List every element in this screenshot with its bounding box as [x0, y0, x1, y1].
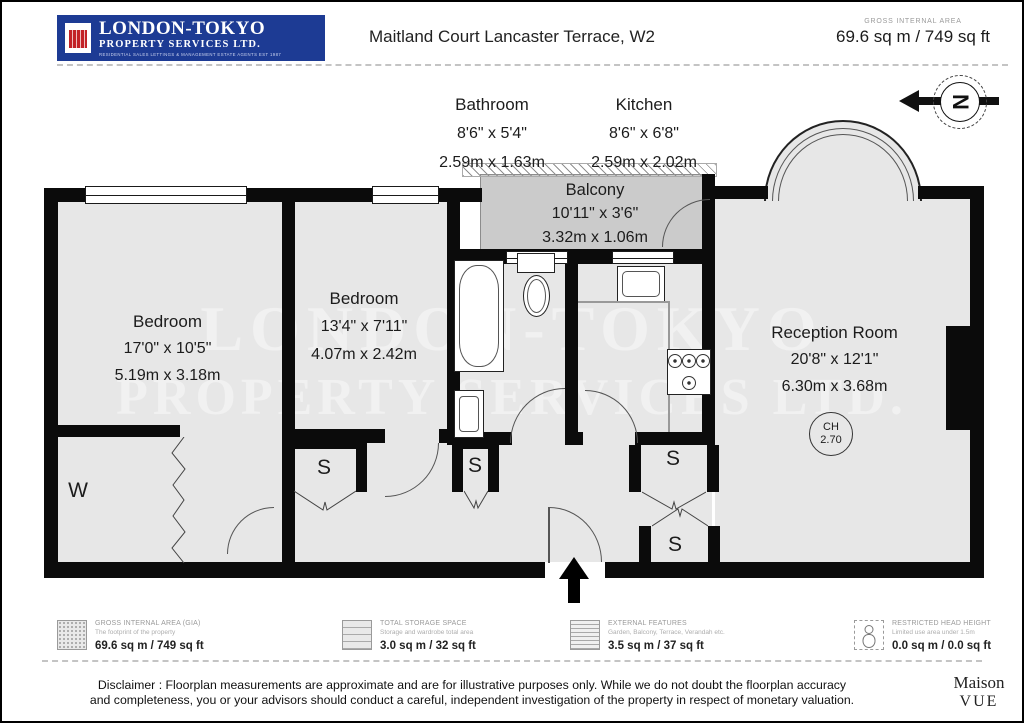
kitchen-label: Kitchen 8'6" x 6'8" 2.59m x 2.02m — [570, 90, 718, 177]
legend-title: TOTAL STORAGE SPACE — [380, 620, 476, 627]
legend-value: 69.6 sq m / 749 sq ft — [95, 640, 204, 652]
window-bedroom2 — [372, 186, 439, 204]
wall-closet4 — [708, 526, 720, 562]
compass-arrowhead-icon — [899, 90, 919, 112]
entrance-door-leaf — [548, 507, 550, 563]
brand-line2: VUE — [940, 693, 1018, 711]
wall — [970, 198, 984, 578]
room-name: Bedroom — [80, 308, 255, 335]
storage-marker: S — [458, 454, 492, 478]
legend-value: 3.5 sq m / 37 sq ft — [608, 640, 725, 652]
header-divider — [57, 64, 1008, 66]
wardrobe-accordion-door — [168, 437, 190, 563]
bathroom-label: Bathroom 8'6" x 5'4" 2.59m x 1.63m — [417, 90, 567, 177]
wall — [44, 188, 58, 578]
balcony-label: Balcony 10'11" x 3'6" 3.32m x 1.06m — [482, 178, 708, 250]
counter-edge — [578, 301, 670, 303]
restricted-height-icon — [854, 620, 884, 650]
closet2-bifold-door — [464, 490, 488, 510]
room-metric: 5.19m x 3.18m — [80, 362, 255, 389]
storage-marker: S — [307, 456, 341, 480]
storage-marker: S — [656, 447, 690, 471]
wall-closet3 — [629, 445, 641, 492]
toilet-cistern-icon — [517, 253, 555, 273]
room-imperial: 10'11" x 3'6" — [482, 202, 708, 226]
room-name: Bedroom — [280, 285, 448, 313]
gia-swatch-icon — [57, 620, 87, 650]
bay-window-arch — [764, 120, 922, 201]
legend-divider — [42, 660, 982, 662]
legend-value: 3.0 sq m / 32 sq ft — [380, 640, 476, 652]
storage-marker: S — [658, 533, 692, 557]
disclaimer-line1: Disclaimer : Floorplan measurements are … — [52, 678, 892, 693]
legend-subtitle: Garden, Balcony, Terrace, Verandah etc. — [608, 629, 725, 636]
room-name: Bathroom — [417, 90, 567, 119]
reception-label: Reception Room 20'8" x 12'1" 6.30m x 3.6… — [737, 319, 932, 400]
legend-title: EXTERNAL FEATURES — [608, 620, 725, 627]
disclaimer: Disclaimer : Floorplan measurements are … — [52, 678, 892, 707]
ch-label: CH — [810, 421, 852, 434]
entrance-arrow-icon — [559, 557, 589, 579]
room-metric: 2.59m x 2.02m — [570, 148, 718, 177]
window-kitchen — [612, 251, 674, 264]
wardrobe-marker: W — [62, 479, 94, 503]
legend-subtitle: Storage and wardrobe total area — [380, 629, 476, 636]
wall — [565, 264, 578, 445]
legend-title: RESTRICTED HEAD HEIGHT — [892, 620, 991, 627]
legend-gia: GROSS INTERNAL AREA (GIA) The footprint … — [57, 620, 204, 652]
gross-internal-area: GROSS INTERNAL AREA 69.6 sq m / 749 sq f… — [818, 18, 1008, 47]
room-imperial: 13'4" x 7'11" — [280, 313, 448, 341]
window-bedroom1 — [85, 186, 247, 204]
compass-north-letter: N — [947, 94, 973, 110]
kitchen-sink-icon — [617, 266, 665, 302]
person-icon — [865, 625, 874, 634]
floorplan-page: LONDON-TOKYO PROPERTY SERVICES LTD. RESI… — [0, 0, 1024, 723]
room-metric: 4.07m x 2.42m — [280, 341, 448, 369]
legend-restricted: RESTRICTED HEAD HEIGHT Limited use area … — [854, 620, 991, 652]
gia-value: 69.6 sq m / 749 sq ft — [818, 27, 1008, 47]
wall-closet4 — [639, 526, 651, 562]
toilet-icon — [523, 275, 550, 317]
disclaimer-line2: and completeness, you or your advisors s… — [52, 693, 892, 708]
legend-subtitle: Limited use area under 1.5m — [892, 629, 991, 636]
external-swatch-icon — [570, 620, 600, 650]
storage-swatch-icon — [342, 620, 372, 650]
room-imperial: 8'6" x 6'8" — [570, 119, 718, 148]
bathroom-sink-icon — [454, 390, 484, 438]
ch-value: 2.70 — [810, 434, 852, 447]
legend-title: GROSS INTERNAL AREA (GIA) — [95, 620, 204, 627]
bathtub-icon — [454, 260, 504, 372]
room-metric: 6.30m x 3.68m — [737, 373, 932, 400]
room-imperial: 8'6" x 5'4" — [417, 119, 567, 148]
entrance-arrow-stem — [568, 577, 580, 603]
legend-subtitle: The footprint of the property — [95, 629, 204, 636]
maison-vue-logo: Maison VUE — [940, 673, 1018, 711]
room-metric: 3.32m x 1.06m — [482, 226, 708, 250]
room-name: Reception Room — [737, 319, 932, 346]
legend-external: EXTERNAL FEATURES Garden, Balcony, Terra… — [570, 620, 725, 652]
wall-chimney-breast — [946, 326, 970, 430]
wall-closet1 — [282, 439, 367, 449]
legend-storage: TOTAL STORAGE SPACE Storage and wardrobe… — [342, 620, 476, 652]
wall-closet3 — [707, 445, 719, 492]
wall-wardrobe — [58, 425, 180, 437]
room-name: Kitchen — [570, 90, 718, 119]
room-name: Balcony — [482, 178, 708, 202]
room-imperial: 20'8" x 12'1" — [737, 346, 932, 373]
wall-closet1 — [356, 439, 367, 492]
bedroom1-label: Bedroom 17'0" x 10'5" 5.19m x 3.18m — [80, 308, 255, 389]
room-imperial: 17'0" x 10'5" — [80, 335, 255, 362]
compass-icon: N — [940, 82, 980, 122]
room-metric: 2.59m x 1.63m — [417, 148, 567, 177]
legend-value: 0.0 sq m / 0.0 sq ft — [892, 640, 991, 652]
gia-label: GROSS INTERNAL AREA — [818, 18, 1008, 25]
brand-line1: Maison — [940, 673, 1018, 693]
ceiling-height-badge: CH 2.70 — [809, 412, 853, 456]
hob-icon — [667, 349, 711, 395]
closet4-bifold-door — [652, 507, 708, 527]
wall-closet1 — [282, 439, 293, 492]
agency-tagline: RESIDENTIAL SALES LETTINGS & MANAGEMENT … — [99, 53, 281, 57]
bedroom2-label: Bedroom 13'4" x 7'11" 4.07m x 2.42m — [280, 285, 448, 369]
closet1-bifold-door — [294, 490, 356, 512]
wall — [565, 432, 583, 445]
wall — [44, 562, 984, 578]
